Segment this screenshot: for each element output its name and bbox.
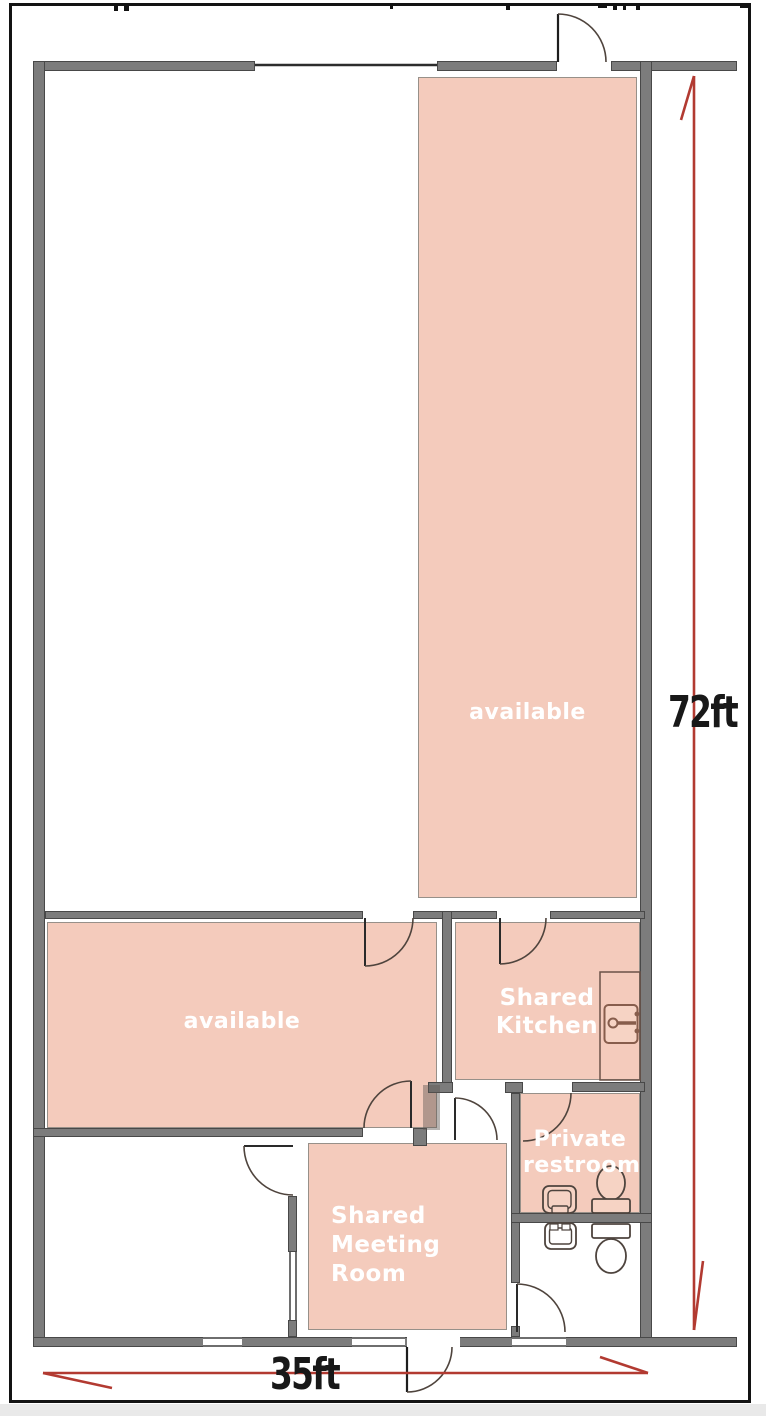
dimension-height-label: 72ft [668,688,737,738]
wall-lower-stub [413,1128,427,1146]
wall-mid-horizontal-b [413,911,497,919]
wall-kitchen-left [442,911,452,1092]
wall-restroom-divider [511,1213,652,1223]
page-bottom-edge [0,1404,766,1416]
window-bottom-1 [203,1337,242,1347]
door-opening-entrance [407,1337,460,1347]
cropped-text-fragment [114,4,118,11]
room-available-tall [418,77,637,898]
wall-lower-horizontal [33,1128,363,1137]
cropped-text-fragment [390,3,393,9]
window-bottom-3 [512,1337,566,1347]
cropped-text-fragment [636,3,640,10]
label-private-restroom: Private restroom [523,1127,637,1179]
wall-meeting-left-b [288,1320,297,1337]
wall-restroom-top-pillar [505,1082,523,1093]
cropped-text-fragment [623,3,626,10]
wall-restroom-left-stub [511,1326,520,1337]
floor-plan-page: available available Shared Kitchen Priva… [0,0,766,1422]
label-shared-meeting-room: Shared Meeting Room [331,1202,499,1289]
wall-top-right [611,61,737,71]
cropped-text-fragment [740,5,749,8]
dimension-width-label: 35ft [270,1350,339,1400]
window-bottom-2 [352,1337,405,1347]
cropped-text-fragment [124,4,129,11]
wall-mid-horizontal-a [45,911,363,919]
cropped-text-fragment [506,3,510,10]
wall-right-exterior [640,61,652,1347]
wall-restroom-top [572,1082,645,1092]
label-available-tall: available [418,699,637,726]
wall-left-exterior [33,61,45,1347]
wall-top-middle [437,61,557,71]
wall-top-left [33,61,255,71]
wall-meeting-left-a [288,1196,297,1252]
wall-restroom-left [511,1093,520,1283]
wall-hall-pillar [423,1085,440,1130]
cropped-text-fragment [598,5,607,8]
wall-mid-horizontal-c [550,911,645,919]
label-shared-kitchen: Shared Kitchen [487,984,607,1040]
window-meeting-left [289,1252,297,1320]
cropped-text-fragment [613,3,617,10]
label-available-left: available [47,1008,437,1035]
